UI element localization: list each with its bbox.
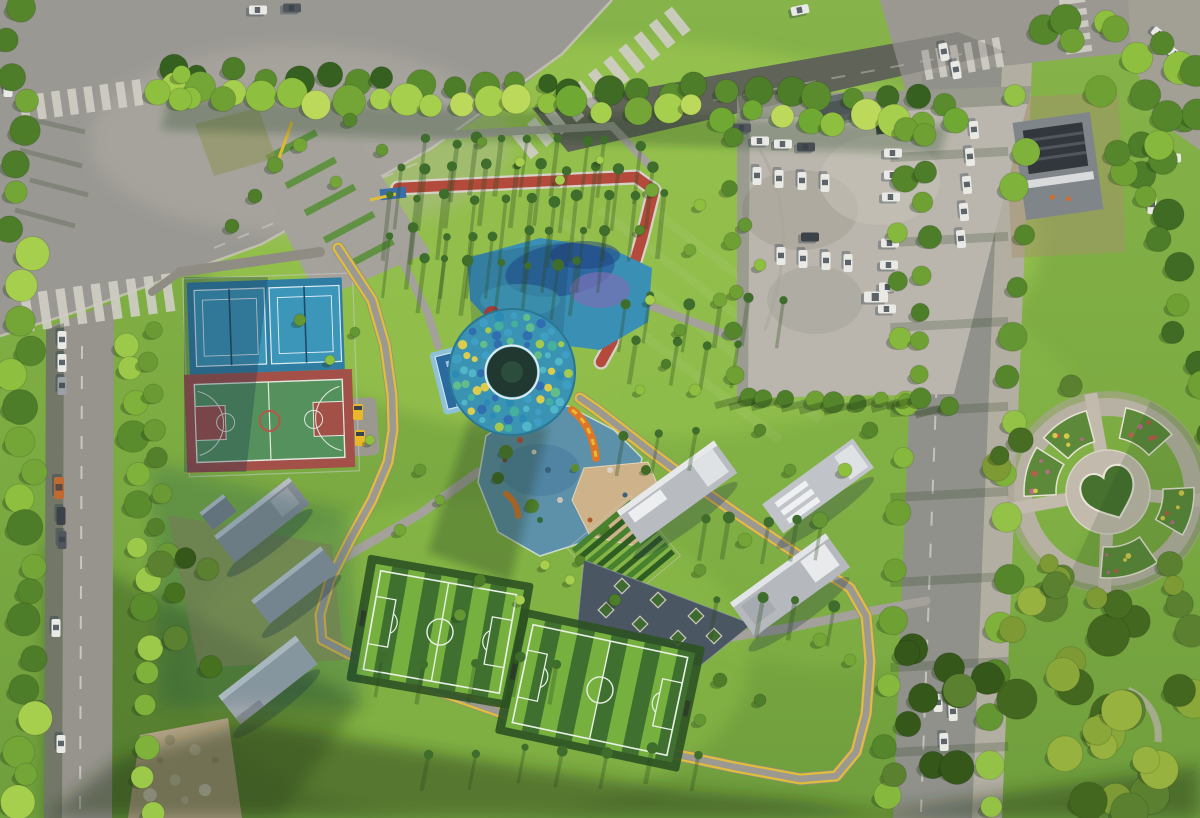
tree xyxy=(565,575,575,585)
tree xyxy=(911,303,929,321)
tree xyxy=(1163,674,1195,706)
tree xyxy=(145,322,162,339)
tree xyxy=(1166,294,1188,316)
canopy-mosaic-dot xyxy=(555,358,563,366)
car xyxy=(751,164,762,185)
tree xyxy=(138,352,158,372)
tree xyxy=(376,144,388,156)
tree xyxy=(294,314,306,326)
car xyxy=(879,193,900,204)
tree xyxy=(609,594,621,606)
tree xyxy=(435,495,445,505)
tree xyxy=(5,484,34,513)
tree xyxy=(501,84,531,114)
tree xyxy=(994,564,1024,594)
sapling xyxy=(413,195,421,203)
sapling xyxy=(701,514,710,523)
canopy-mosaic-dot xyxy=(462,380,470,388)
sapling xyxy=(377,652,388,663)
flowers xyxy=(1031,471,1037,477)
tree xyxy=(1132,746,1159,773)
car xyxy=(771,140,792,151)
car-windshield xyxy=(58,513,64,518)
tree xyxy=(225,219,239,233)
sapling xyxy=(557,746,568,757)
tree xyxy=(590,102,611,123)
canopy-mosaic-dot xyxy=(458,340,467,349)
sapling xyxy=(620,299,630,309)
sapling xyxy=(386,191,393,198)
tree xyxy=(173,66,191,84)
sapling xyxy=(828,600,840,612)
car-windshield xyxy=(971,127,977,133)
tree xyxy=(317,62,342,87)
tree xyxy=(539,74,558,93)
car-windshield xyxy=(872,293,879,301)
tree xyxy=(885,500,911,526)
canopy-mosaic-dot xyxy=(534,418,542,426)
tree xyxy=(7,509,43,545)
sapling xyxy=(647,742,658,753)
tree xyxy=(211,86,236,111)
sapling xyxy=(419,253,429,263)
play-equipment-piece xyxy=(588,518,593,523)
sapling xyxy=(613,163,624,174)
tree xyxy=(596,156,604,164)
sapling xyxy=(580,227,587,234)
car-windshield xyxy=(803,144,808,150)
sapling xyxy=(554,134,562,142)
tree xyxy=(1004,84,1026,106)
tree xyxy=(330,176,342,188)
sapling xyxy=(692,427,700,435)
car-windshield xyxy=(886,262,891,268)
yellow-cart xyxy=(353,404,363,420)
sapling xyxy=(421,134,430,143)
car xyxy=(819,171,830,192)
sapling xyxy=(792,515,802,525)
tree xyxy=(267,157,283,173)
sapling xyxy=(552,660,561,669)
tree xyxy=(771,105,794,128)
tree xyxy=(540,560,550,570)
tree xyxy=(3,389,38,424)
tree xyxy=(454,609,466,621)
tree xyxy=(1014,225,1034,245)
tree xyxy=(872,734,897,759)
tree xyxy=(909,683,939,713)
sapling xyxy=(647,161,658,172)
tree xyxy=(784,464,796,476)
tree xyxy=(144,419,166,441)
canopy-mosaic-dot xyxy=(562,380,571,389)
car xyxy=(55,504,66,525)
canopy-mosaic-dot xyxy=(524,342,530,348)
canopy-mosaic-dot xyxy=(467,407,475,415)
canopy-mosaic-dot xyxy=(492,331,501,340)
sapling xyxy=(655,429,663,437)
car xyxy=(797,247,808,268)
car xyxy=(775,244,786,265)
sapling xyxy=(764,517,774,527)
tree xyxy=(555,175,565,185)
sapling xyxy=(447,161,457,171)
tree xyxy=(645,183,659,197)
canopy-mosaic-dot xyxy=(485,327,491,333)
tree xyxy=(147,447,168,468)
canopy-mosaic-dot xyxy=(564,369,573,378)
car xyxy=(56,351,67,372)
car-windshield xyxy=(950,709,956,715)
canopy-mosaic-dot xyxy=(461,400,467,406)
tree xyxy=(0,359,27,391)
tree xyxy=(124,491,152,519)
car-windshield xyxy=(799,178,805,183)
sapling xyxy=(524,225,534,235)
sapling xyxy=(488,232,498,242)
tree xyxy=(0,63,26,91)
tree xyxy=(724,322,742,340)
sapling xyxy=(441,255,448,262)
sapling xyxy=(683,298,695,310)
tree xyxy=(370,88,391,109)
canopy-mosaic-dot xyxy=(495,423,504,432)
canopy-mosaic-dot xyxy=(452,354,462,364)
tree xyxy=(995,365,1019,389)
car xyxy=(875,305,896,316)
tree xyxy=(879,606,908,635)
tree xyxy=(844,654,856,666)
car-windshield xyxy=(888,194,893,200)
scene-svg xyxy=(0,0,1200,818)
tree xyxy=(5,269,37,301)
tree xyxy=(1103,590,1132,619)
tree xyxy=(635,225,645,235)
car-windshield xyxy=(823,258,829,263)
sapling xyxy=(791,596,799,604)
canopy-mosaic-dot xyxy=(493,405,501,413)
car-windshield xyxy=(958,236,964,242)
car xyxy=(881,149,902,160)
canopy-mosaic-dot xyxy=(555,398,564,407)
tree xyxy=(913,123,936,146)
tree xyxy=(0,216,23,243)
tree xyxy=(992,502,1022,532)
car-windshield xyxy=(56,484,63,491)
tree xyxy=(906,84,930,108)
tree xyxy=(1047,736,1083,772)
bush xyxy=(571,464,579,472)
car xyxy=(280,4,301,15)
sapling xyxy=(743,293,753,303)
tree xyxy=(1087,614,1129,656)
sapling xyxy=(481,159,492,170)
car xyxy=(842,251,853,272)
tree xyxy=(152,484,172,504)
tree xyxy=(729,285,743,299)
sapling xyxy=(524,262,531,269)
flowers xyxy=(1080,437,1084,441)
sapling xyxy=(453,140,462,149)
tree xyxy=(143,384,163,404)
tree xyxy=(136,661,158,683)
sapling xyxy=(443,233,451,241)
tree xyxy=(661,359,671,369)
car-windshield xyxy=(845,260,851,265)
canopy-mosaic-dot xyxy=(550,405,558,413)
tree xyxy=(18,701,52,735)
sapling xyxy=(604,190,614,200)
tree xyxy=(722,180,738,196)
canopy-mosaic-dot xyxy=(536,319,545,328)
car xyxy=(861,292,888,305)
tree xyxy=(1165,252,1194,281)
tree xyxy=(1105,140,1131,166)
car-windshield xyxy=(884,306,889,312)
tree xyxy=(754,694,766,706)
canopy-mosaic-dot xyxy=(535,409,542,416)
sapling xyxy=(521,744,528,751)
bush xyxy=(641,465,651,475)
tree xyxy=(450,92,474,116)
tree xyxy=(515,595,525,605)
canopy-mosaic-dot xyxy=(506,399,514,407)
canopy-mosaic-dot xyxy=(477,369,485,377)
sapling xyxy=(439,189,450,200)
tree xyxy=(894,640,920,666)
tree xyxy=(1,785,35,818)
tree xyxy=(801,81,831,111)
canopy-mosaic-dot xyxy=(494,312,504,322)
car-windshield xyxy=(952,66,959,72)
sapling xyxy=(408,222,419,233)
canopy-mosaic-dot xyxy=(548,368,555,375)
canopy-mosaic-dot xyxy=(468,394,475,401)
sapling xyxy=(562,166,572,176)
car-windshield xyxy=(59,360,65,365)
tree xyxy=(877,674,900,697)
tree xyxy=(199,655,221,677)
tree xyxy=(21,554,46,579)
canopy-mosaic-dot xyxy=(469,369,477,377)
tree xyxy=(674,324,686,336)
tree xyxy=(1164,576,1184,596)
car-windshield xyxy=(53,625,59,630)
sapling xyxy=(723,511,735,523)
tree xyxy=(754,259,766,271)
canopy-mosaic-dot xyxy=(551,388,561,398)
tree xyxy=(414,464,426,476)
flowers xyxy=(1039,459,1043,463)
canopy-mosaic-dot xyxy=(479,417,485,423)
canopy-mosaic-dot xyxy=(523,331,533,341)
canopy-mosaic-dot xyxy=(480,341,487,348)
tree xyxy=(131,766,153,788)
sapling xyxy=(758,592,769,603)
tree xyxy=(684,244,696,256)
tree xyxy=(1150,31,1174,55)
tree xyxy=(940,397,959,416)
tree xyxy=(754,424,766,436)
tree xyxy=(689,384,701,396)
tree xyxy=(838,463,852,477)
flowers xyxy=(1033,489,1038,494)
tree xyxy=(246,80,277,111)
sapling xyxy=(386,232,393,239)
tree xyxy=(813,633,827,647)
canopy-mosaic-dot xyxy=(562,351,570,359)
sapling xyxy=(599,225,610,236)
tree xyxy=(743,100,763,120)
tree xyxy=(981,796,1002,817)
tree xyxy=(21,459,47,485)
tree xyxy=(5,427,35,457)
tree xyxy=(681,94,702,115)
tree xyxy=(887,223,907,243)
sapling xyxy=(468,232,477,241)
tree xyxy=(134,694,155,715)
sapling xyxy=(571,189,583,201)
play-equipment-piece xyxy=(545,467,551,473)
tree xyxy=(21,646,47,672)
tree xyxy=(914,161,936,183)
tree xyxy=(5,181,28,204)
canopy-mosaic-dot xyxy=(546,398,554,406)
tree xyxy=(912,192,933,213)
canopy-mosaic-dot xyxy=(523,314,530,321)
canopy-mosaic-dot xyxy=(469,328,477,336)
tree xyxy=(1060,28,1084,52)
tree xyxy=(715,79,739,103)
tree xyxy=(474,574,486,586)
tree xyxy=(912,266,931,285)
tree xyxy=(1086,587,1107,608)
sapling xyxy=(419,660,428,669)
sapling xyxy=(424,750,434,760)
canopy-mosaic-dot xyxy=(452,371,459,378)
tree xyxy=(694,199,706,211)
car-windshield xyxy=(964,182,970,188)
tree xyxy=(1085,76,1117,108)
sapling xyxy=(472,750,480,758)
car-windshield xyxy=(940,48,947,54)
play-equipment-piece xyxy=(537,517,543,523)
play-equipment-piece xyxy=(623,493,628,498)
canopy-mosaic-dot xyxy=(473,386,482,395)
sapling xyxy=(713,596,720,603)
sapling xyxy=(523,135,531,143)
tree xyxy=(5,306,35,336)
car-windshield xyxy=(757,138,762,144)
tree xyxy=(713,673,727,687)
tree xyxy=(515,157,525,167)
sapling xyxy=(631,191,641,201)
sapling xyxy=(583,136,594,147)
tree xyxy=(17,578,43,604)
sapling xyxy=(462,255,473,266)
car xyxy=(820,249,831,270)
canopy-mosaic-dot xyxy=(477,405,486,414)
flowers xyxy=(1045,470,1049,474)
tree xyxy=(694,714,706,726)
car xyxy=(794,143,815,154)
sapling xyxy=(419,163,430,174)
tree xyxy=(975,751,1004,780)
tree xyxy=(943,674,977,708)
tree xyxy=(248,189,262,203)
tree xyxy=(365,435,375,445)
play-equipment-piece xyxy=(557,497,563,503)
tree xyxy=(1152,100,1183,131)
canopy-mosaic-dot xyxy=(519,415,527,423)
tree xyxy=(998,322,1027,351)
tree xyxy=(738,533,752,547)
canopy-mosaic-dot xyxy=(526,323,535,332)
car xyxy=(55,732,66,753)
tree xyxy=(419,94,442,117)
sapling xyxy=(631,336,640,345)
sapling xyxy=(673,337,683,347)
flowers xyxy=(1064,433,1070,439)
car xyxy=(773,167,784,188)
tree xyxy=(595,75,625,105)
tree xyxy=(1012,138,1040,166)
tree xyxy=(137,635,163,661)
tree xyxy=(135,735,160,760)
tree xyxy=(169,88,192,111)
sapling xyxy=(515,652,525,662)
tree xyxy=(918,225,941,248)
sapling xyxy=(498,259,505,266)
sapling xyxy=(470,195,480,205)
canopy-mosaic-dot xyxy=(472,356,478,362)
canopy-mosaic-dot xyxy=(460,366,468,374)
car-windshield xyxy=(807,234,812,240)
car-windshield xyxy=(961,209,967,215)
tree xyxy=(724,128,743,147)
canopy-mosaic-dot xyxy=(547,341,557,351)
sapling xyxy=(703,341,712,350)
canopy-hub xyxy=(501,361,523,383)
tree xyxy=(910,365,928,383)
car-windshield xyxy=(754,173,760,178)
tree xyxy=(1042,571,1069,598)
tree xyxy=(301,90,330,119)
canopy-mosaic-dot xyxy=(511,321,518,328)
tree xyxy=(114,333,139,358)
canopy-mosaic-dot xyxy=(494,321,503,330)
tree xyxy=(1101,690,1142,731)
tree xyxy=(635,385,645,395)
tree xyxy=(1007,277,1027,297)
tree xyxy=(820,112,844,136)
tree xyxy=(15,89,39,113)
canopy-mosaic-dot xyxy=(522,422,532,432)
sapling xyxy=(549,196,561,208)
tree xyxy=(1040,554,1059,573)
tree xyxy=(15,237,49,271)
tree xyxy=(910,331,928,349)
tree xyxy=(1146,227,1171,252)
canopy-mosaic-dot xyxy=(471,338,479,346)
car-windshield xyxy=(822,180,828,185)
canopy-mosaic-dot xyxy=(504,415,513,424)
canopy-mosaic-dot xyxy=(510,407,520,417)
tree xyxy=(350,327,360,337)
tree xyxy=(1135,186,1156,207)
tree xyxy=(724,232,741,249)
tree xyxy=(127,537,147,557)
